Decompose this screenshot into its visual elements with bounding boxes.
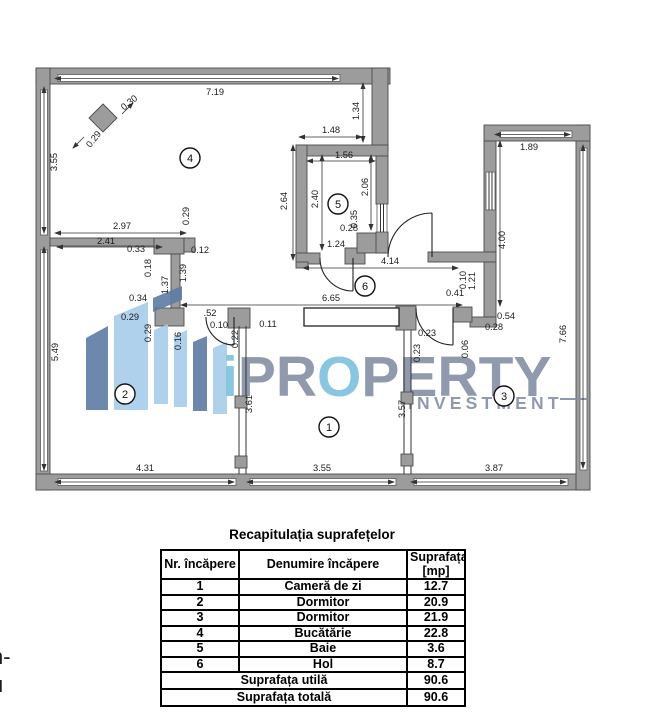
dimension-label: 1.39 (178, 264, 188, 282)
column-pillar (89, 104, 117, 132)
dimension-label: 0.29 (84, 129, 103, 149)
edge-text-fragment: u (0, 672, 3, 698)
dimension-label: 1.48 (322, 125, 340, 135)
room-number: 6 (362, 281, 368, 293)
dimension-label: 1.24 (327, 239, 345, 249)
dimension-label: 0.22 (230, 330, 240, 348)
table-cell: Cameră de zi (239, 579, 407, 595)
dimension-label: 2.40 (310, 190, 320, 208)
dimension-label: 0.30 (119, 93, 139, 112)
dimension-label: 5.49 (50, 343, 60, 361)
dimension-label: 2.97 (113, 221, 131, 231)
table-row: 5Baie3.6 (161, 641, 465, 657)
table-cell: 12.7 (407, 579, 465, 595)
table-cell: Bucătărie (239, 626, 407, 642)
dimension-label: 3.61 (244, 395, 254, 413)
logo-building-shape (193, 336, 207, 411)
table-cell: Dormitor (239, 610, 407, 626)
table-cell: 1 (161, 579, 239, 595)
room-number: 3 (501, 391, 507, 403)
room-number: 2 (122, 389, 128, 401)
dimension-label: 7.66 (558, 325, 568, 343)
table-row: 3Dormitor21.9 (161, 610, 465, 626)
edge-text-fragment: n- (0, 644, 11, 670)
dimension-label: 3.87 (485, 463, 503, 473)
dimension-label: 0.11 (259, 319, 276, 329)
dimension-label: 3.55 (49, 153, 59, 171)
table-cell: 3 (161, 610, 239, 626)
bedroom3-door (416, 308, 453, 345)
table-cell: 3.6 (407, 641, 465, 657)
dimension-label: 4.14 (381, 256, 399, 266)
table-footer-label: Suprafața utilă (161, 672, 407, 689)
table-cell: 20.9 (407, 595, 465, 611)
table-cell: 6 (161, 657, 239, 673)
logo-building-shape (86, 326, 108, 410)
logo-building-shape (154, 324, 168, 404)
dimension-label: 1.89 (520, 142, 538, 152)
entrance-door (388, 213, 432, 257)
dimension-label: 2.64 (279, 192, 289, 210)
table-cell: 8.7 (407, 657, 465, 673)
dimension-label: 4.31 (136, 463, 154, 473)
dimension-label: 1.21 (467, 272, 477, 290)
room-number: 1 (326, 422, 332, 434)
dimension-label: 0.29 (121, 312, 139, 322)
dimension-label: 0.10 (210, 320, 228, 330)
dimension-label: 1.37 (160, 276, 170, 294)
table-header-cell: Denumire încăpere (239, 550, 407, 579)
dimension-label: 0.28 (485, 322, 503, 332)
dimension-label: 3.57 (397, 400, 407, 418)
table-title: Recapitulația suprafețelor (160, 527, 464, 542)
dimension-label: 0.54 (497, 311, 515, 321)
watermark-subtext: INVESTMENT (408, 393, 563, 413)
table-cell: 5 (161, 641, 239, 657)
dimension-label: 0.06 (460, 340, 470, 358)
dimension-label: 0.18 (143, 259, 153, 277)
table-cell: 21.9 (407, 610, 465, 626)
table-footer-value: 90.6 (407, 672, 465, 689)
table-row: 1Cameră de zi12.7 (161, 579, 465, 595)
dimension-label: 3.55 (313, 463, 331, 473)
floorplan: iPROPERTY INVESTMENT (0, 0, 652, 524)
bathroom-window (377, 204, 387, 232)
room-number: 5 (335, 199, 341, 211)
dimension-label: 2.41 (97, 236, 115, 246)
dimension-label: 0.28 (340, 223, 358, 233)
dimension-label: 0.16 (173, 332, 183, 350)
table-header-cell: Nr. încăpere (161, 550, 239, 579)
wardrobe (304, 308, 399, 326)
table-footer-row: Suprafața utilă90.6 (161, 672, 465, 689)
table-cell: 22.8 (407, 626, 465, 642)
table-row: 2Dormitor20.9 (161, 595, 465, 611)
room-number: 4 (187, 153, 193, 165)
table-cell: 4 (161, 626, 239, 642)
area-summary: Recapitulația suprafețelor Nr. încăpereD… (160, 527, 464, 707)
table-footer-label: Suprafața totală (161, 689, 407, 706)
table-cell: 2 (161, 595, 239, 611)
dimension-label: 4.00 (497, 231, 507, 249)
dimension-label: 0.34 (129, 293, 147, 303)
dimension-label: 0.29 (143, 324, 153, 342)
dimension-label: 0.41 (446, 288, 464, 298)
dimension-label: 2.06 (360, 178, 370, 196)
area-summary-table: Nr. încăpereDenumire încăpereSuprafața[m… (160, 549, 466, 707)
table-header-cell: Suprafața[mp] (407, 550, 465, 579)
dimension-label: 0.33 (127, 244, 145, 254)
dimension-label: 0.23 (418, 328, 436, 338)
table-row: 4Bucătărie22.8 (161, 626, 465, 642)
dimension-label: 0.12 (191, 245, 209, 255)
table-cell: Baie (239, 641, 407, 657)
table-row: 6Hol8.7 (161, 657, 465, 673)
floorplan-drawing: iPROPERTY INVESTMENT (0, 0, 652, 524)
table-cell: Hol (239, 657, 407, 673)
table-footer-row: Suprafața totală90.6 (161, 689, 465, 706)
dimension-label: 1.56 (335, 150, 353, 160)
dimension-label: .52 (204, 308, 217, 318)
hall-window (486, 172, 495, 210)
table-cell: Dormitor (239, 595, 407, 611)
table-footer-value: 90.6 (407, 689, 465, 706)
dimension-label: 7.19 (206, 87, 224, 97)
dimension-label: 6.65 (322, 293, 340, 303)
dimension-label: 1.34 (351, 102, 361, 120)
dimension-label: 0.23 (412, 344, 422, 362)
windows (41, 75, 588, 486)
dimension-label: 0.29 (181, 207, 191, 225)
